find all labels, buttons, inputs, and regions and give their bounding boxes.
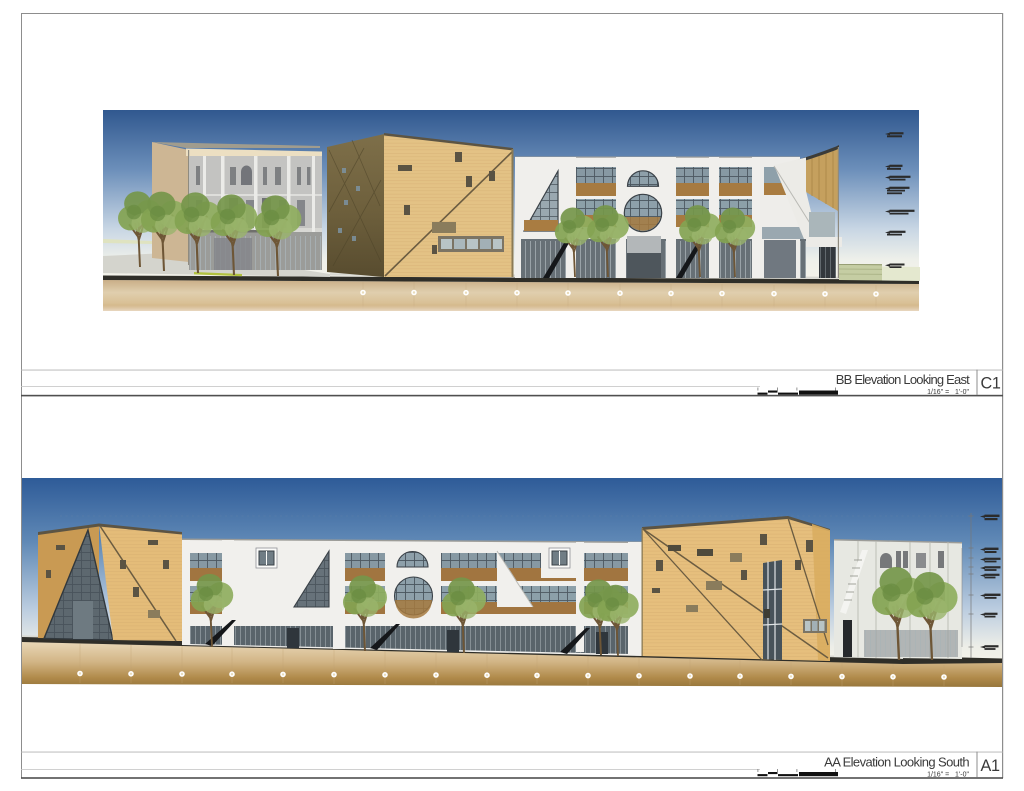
svg-text:1/16" = 1'-0": 1/16" = 1'-0": [927, 389, 969, 396]
svg-text:A1: A1: [981, 757, 1000, 775]
svg-text:1/16" = 1'-0": 1/16" = 1'-0": [927, 771, 969, 778]
svg-text:C1: C1: [981, 375, 1001, 393]
svg-text:AA Elevation Looking South: AA Elevation Looking South: [824, 755, 969, 770]
svg-text:BB Elevation Looking East: BB Elevation Looking East: [836, 372, 970, 387]
